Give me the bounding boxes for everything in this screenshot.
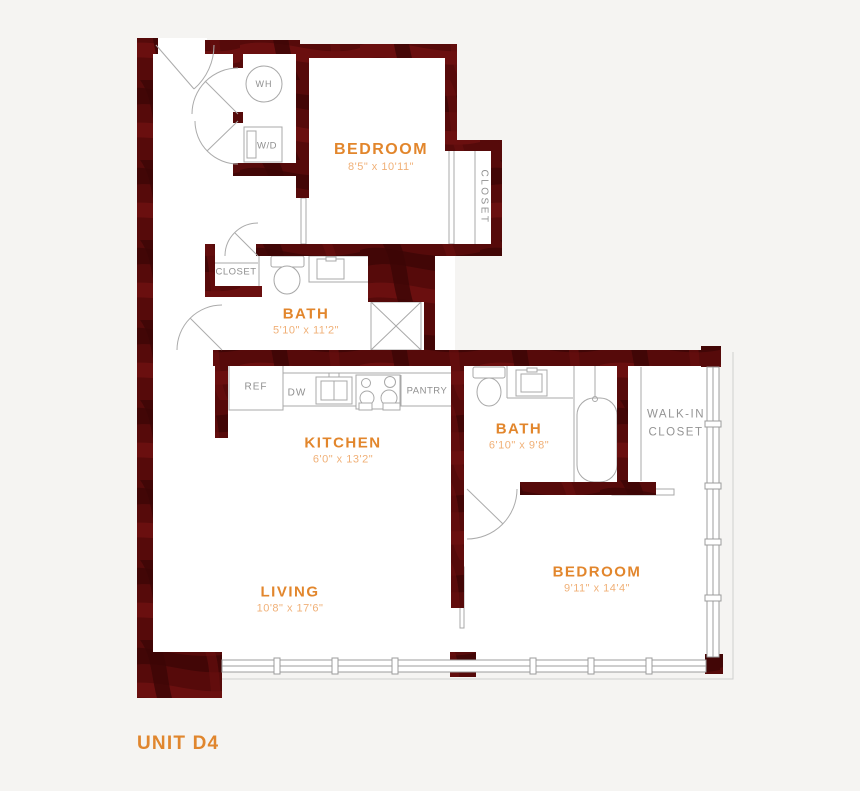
room-name: LIVING (257, 584, 324, 601)
bedroom1-sliding-door (301, 198, 306, 244)
pantry-label: PANTRY (407, 386, 448, 397)
room-dims: 9'11" x 14'4" (553, 583, 642, 595)
wall-bedroom1-right (445, 44, 457, 148)
bedroom-1-closet-label: CLOSET (479, 169, 490, 224)
wall-closet1-right (491, 140, 502, 256)
bedroom-2-label: BEDROOM 9'11" x 14'4" (553, 564, 642, 595)
wall-left-bottom-block (137, 652, 222, 698)
vanity-1-symbol (309, 256, 370, 282)
fridge-label: REF (245, 382, 268, 393)
walk-in-line2: CLOSET (647, 424, 705, 442)
bath-2-label: BATH 6'10" x 9'8" (489, 421, 549, 452)
shower-symbol (371, 302, 421, 350)
wall-left (137, 38, 153, 660)
bedroom-1-label: BEDROOM 8'5" x 10'11" (334, 141, 428, 173)
wall-top-bedroom1 (296, 44, 455, 58)
room-name: BATH (273, 306, 339, 323)
water-heater-label: WH (256, 79, 273, 89)
bath-1-label: BATH 5'10" x 11'2" (273, 306, 339, 337)
dishwasher-label: DW (288, 388, 307, 399)
room-name: BEDROOM (334, 141, 428, 159)
wall-bath2-bottom (520, 482, 656, 495)
wall-corner-post-topright (701, 346, 721, 367)
wall-tub-right (617, 360, 628, 487)
hall-closet-label: CLOSET (215, 267, 256, 278)
living-label: LIVING 10'8" x 17'6" (257, 584, 324, 615)
room-dims: 8'5" x 10'11" (334, 161, 428, 173)
wall-shower-block (368, 244, 433, 302)
room-name: KITCHEN (304, 435, 381, 452)
room-dims: 6'0" x 13'2" (304, 454, 381, 466)
room-dims: 5'10" x 11'2" (273, 325, 339, 337)
room-dims: 6'10" x 9'8" (489, 440, 549, 452)
wall-kitchen-left (215, 350, 228, 438)
room-name: BATH (489, 421, 549, 438)
room-name: BEDROOM (553, 564, 642, 581)
floorplan-canvas: BEDROOM 8'5" x 10'11" CLOSET WH W/D BATH… (0, 0, 860, 791)
wall-top-entry (205, 40, 300, 54)
wall-bath2-left (451, 360, 464, 608)
walk-in-line1: WALK-IN (647, 406, 705, 424)
washer-dryer-label: W/D (257, 141, 277, 152)
walk-in-closet-label: WALK-IN CLOSET (647, 406, 705, 443)
kitchen-label: KITCHEN 6'0" x 13'2" (304, 435, 381, 466)
room-dims: 10'8" x 17'6" (257, 603, 324, 615)
wall-utility-bottom (233, 163, 309, 176)
unit-title: UNIT D4 (137, 733, 219, 755)
